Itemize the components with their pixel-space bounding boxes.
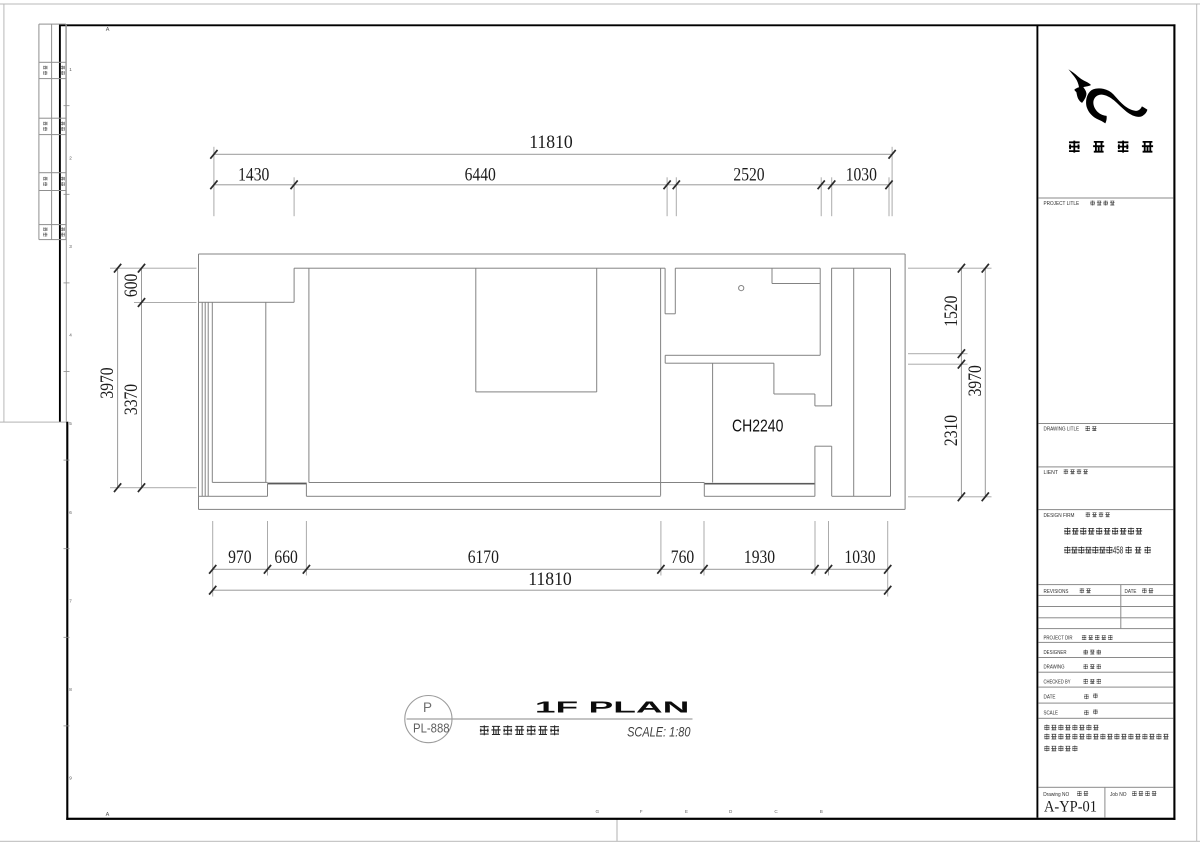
svg-text:1F PLAN: 1F PLAN — [535, 700, 690, 717]
svg-text:760: 760 — [671, 548, 694, 568]
svg-text:4: 4 — [69, 333, 72, 338]
svg-text:A: A — [106, 27, 110, 33]
svg-text:Job NO: Job NO — [1110, 792, 1127, 798]
svg-text:SCALE: SCALE — [1044, 711, 1059, 717]
svg-text:11810: 11810 — [529, 133, 573, 153]
svg-text:3970: 3970 — [966, 365, 986, 396]
svg-text:1930: 1930 — [744, 548, 775, 568]
svg-text:PL-888: PL-888 — [413, 721, 450, 736]
svg-text:F: F — [640, 809, 643, 814]
svg-text:458: 458 — [1113, 546, 1124, 557]
svg-text:600: 600 — [122, 274, 142, 297]
svg-text:2520: 2520 — [733, 165, 764, 185]
svg-text:3370: 3370 — [122, 384, 142, 415]
svg-text:1030: 1030 — [846, 165, 877, 185]
svg-text:B: B — [820, 809, 823, 814]
svg-text:CHECKED BY: CHECKED BY — [1044, 679, 1071, 685]
svg-text:DESIGN FIRM: DESIGN FIRM — [1044, 513, 1075, 519]
svg-text:970: 970 — [228, 548, 251, 568]
svg-text:PROJECT LITLE: PROJECT LITLE — [1044, 201, 1080, 207]
svg-text:CH2240: CH2240 — [732, 416, 784, 436]
svg-text:5: 5 — [69, 421, 72, 426]
svg-text:2310: 2310 — [942, 415, 962, 446]
svg-text:1030: 1030 — [844, 548, 875, 568]
svg-text:1: 1 — [69, 67, 72, 72]
svg-text:LIENT: LIENT — [1044, 470, 1059, 476]
svg-text:A-YP-01: A-YP-01 — [1044, 799, 1097, 816]
svg-text:6: 6 — [69, 510, 72, 515]
svg-text:1430: 1430 — [238, 165, 269, 185]
svg-text:DRAWING: DRAWING — [1044, 665, 1065, 671]
svg-text:1520: 1520 — [942, 296, 962, 327]
svg-text:3970: 3970 — [98, 367, 118, 398]
svg-text:DRAWING LITLE: DRAWING LITLE — [1044, 427, 1080, 433]
svg-text:3: 3 — [69, 244, 72, 249]
svg-text:G: G — [596, 809, 600, 814]
svg-text:P: P — [423, 700, 432, 715]
svg-text:DATE: DATE — [1044, 695, 1056, 701]
svg-text:PROJECT DIR: PROJECT DIR — [1044, 636, 1073, 642]
svg-text:A: A — [106, 812, 110, 818]
svg-text:SCALE: 1:80: SCALE: 1:80 — [627, 724, 691, 740]
svg-text:E: E — [685, 809, 688, 814]
svg-text:DATE: DATE — [1125, 589, 1137, 595]
svg-text:2: 2 — [69, 155, 72, 160]
svg-text:11810: 11810 — [528, 570, 572, 590]
svg-text:8: 8 — [69, 687, 72, 692]
svg-text:6170: 6170 — [468, 548, 499, 568]
svg-text:DESIGNER: DESIGNER — [1044, 650, 1067, 656]
svg-text:Drawing NO: Drawing NO — [1043, 792, 1069, 798]
svg-text:REVISIONS: REVISIONS — [1044, 589, 1069, 595]
svg-text:660: 660 — [274, 548, 297, 568]
svg-text:7: 7 — [69, 598, 72, 603]
svg-text:9: 9 — [69, 776, 72, 781]
svg-text:6440: 6440 — [465, 165, 496, 185]
